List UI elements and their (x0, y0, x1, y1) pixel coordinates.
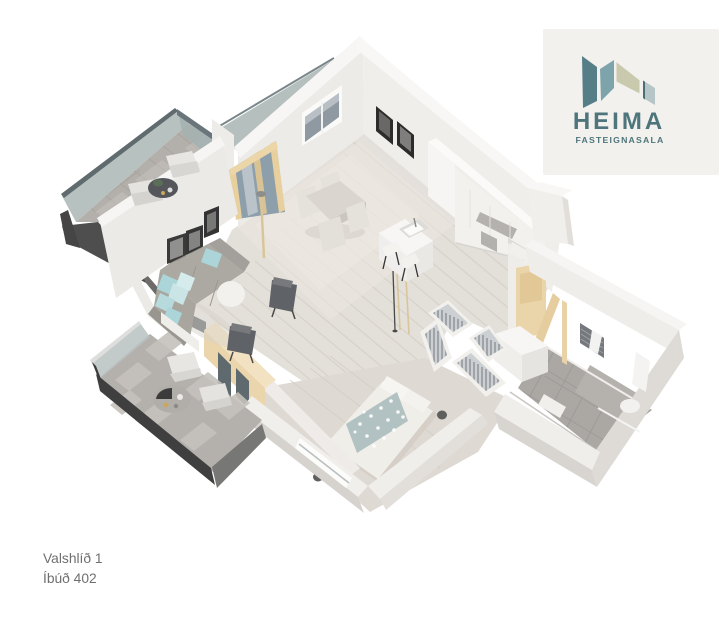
svg-text:Íbúð 402: Íbúð 402 (43, 570, 97, 586)
svg-text:Valshlíð 1: Valshlíð 1 (43, 551, 103, 566)
svg-text:HEIMA: HEIMA (573, 108, 665, 135)
svg-text:FASTEIGNASALA: FASTEIGNASALA (576, 135, 665, 145)
